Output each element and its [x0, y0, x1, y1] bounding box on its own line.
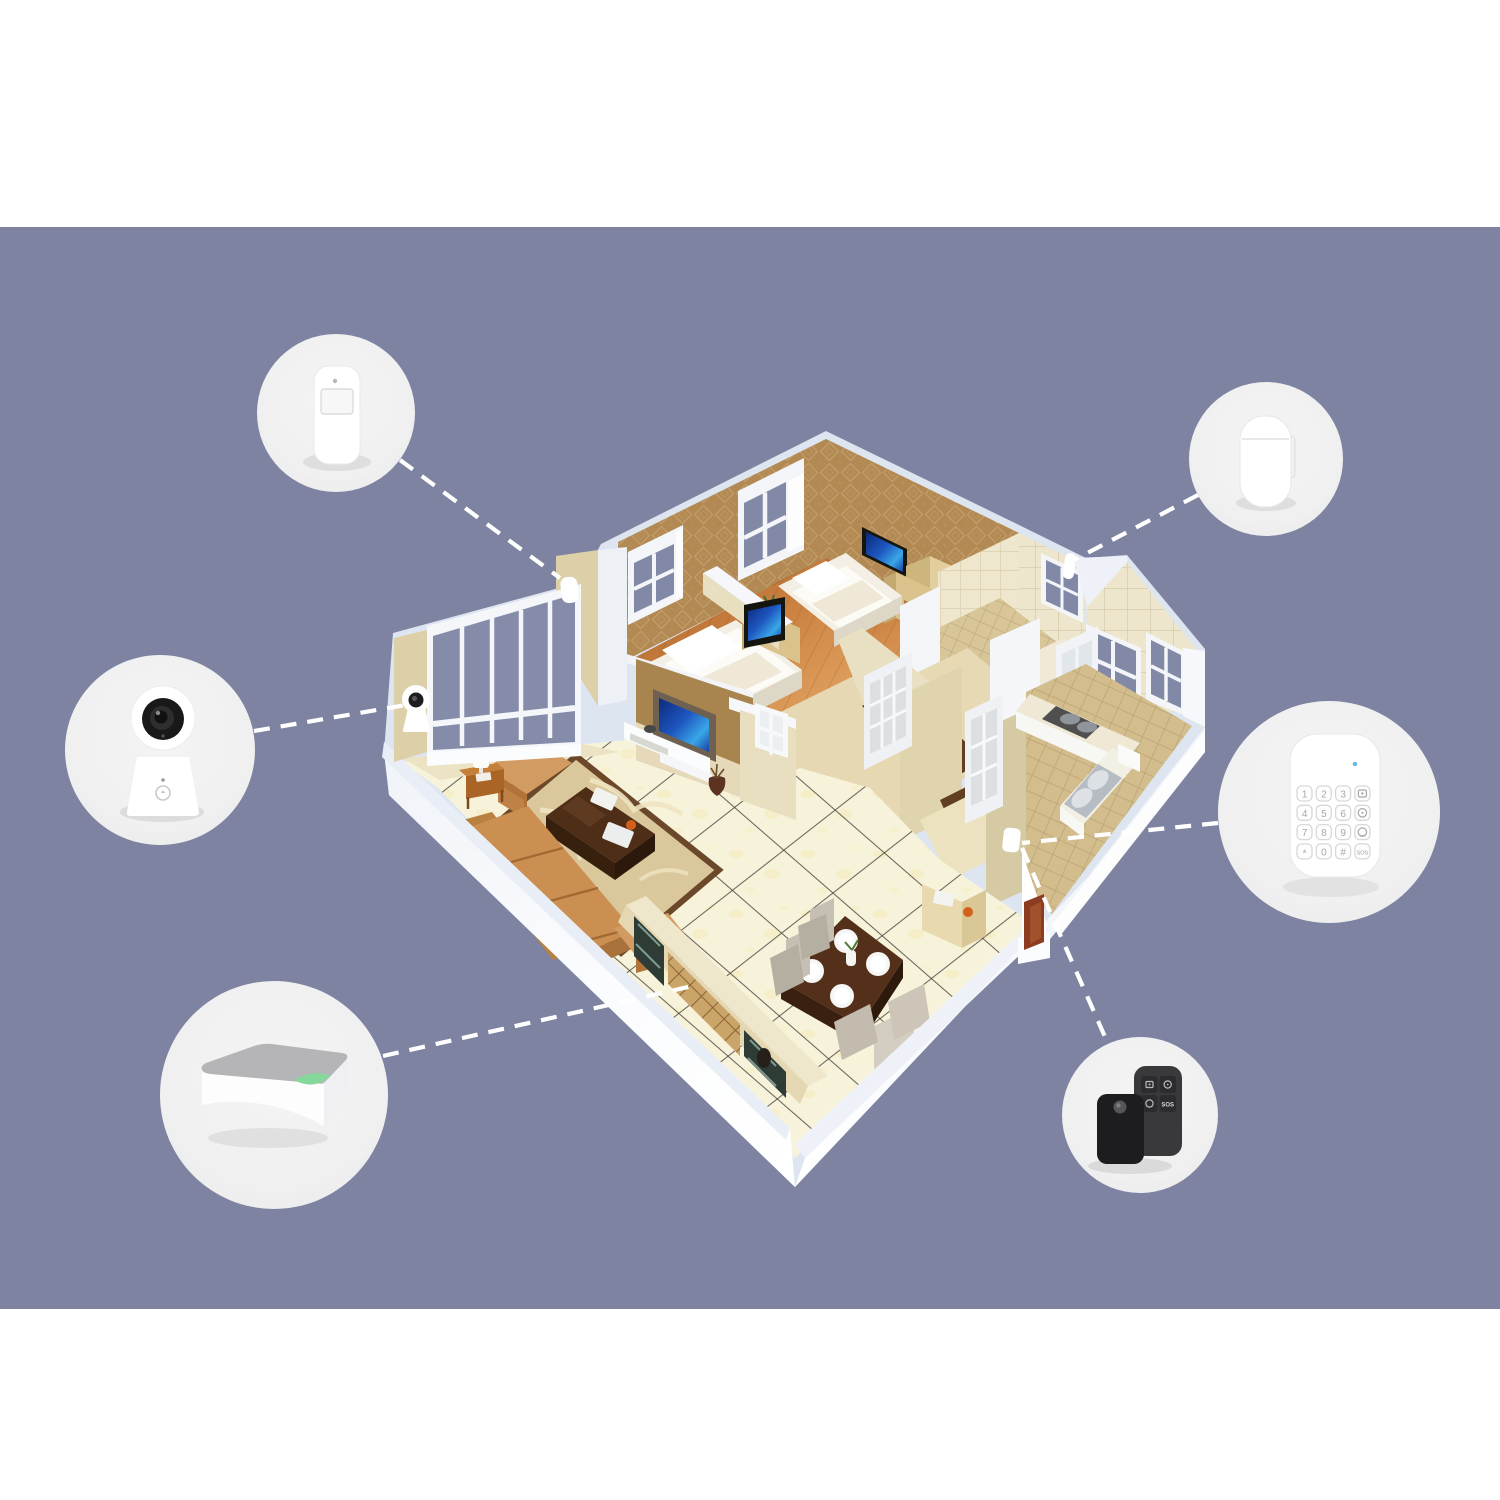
- svg-text:2: 2: [1321, 790, 1327, 801]
- svg-text:#: #: [1340, 847, 1346, 858]
- svg-text:5: 5: [1321, 809, 1327, 820]
- svg-text:*: *: [1303, 849, 1307, 860]
- svg-text:3: 3: [1340, 790, 1346, 801]
- svg-text:4: 4: [1302, 809, 1308, 820]
- svg-text:1: 1: [1302, 790, 1308, 801]
- svg-text:SOS: SOS: [1357, 851, 1369, 857]
- svg-text:7: 7: [1302, 828, 1308, 839]
- svg-text:9: 9: [1340, 828, 1346, 839]
- svg-text:0: 0: [1321, 847, 1327, 858]
- svg-text:6: 6: [1340, 809, 1346, 820]
- svg-text:8: 8: [1321, 828, 1327, 839]
- svg-text:SOS: SOS: [1161, 1103, 1174, 1109]
